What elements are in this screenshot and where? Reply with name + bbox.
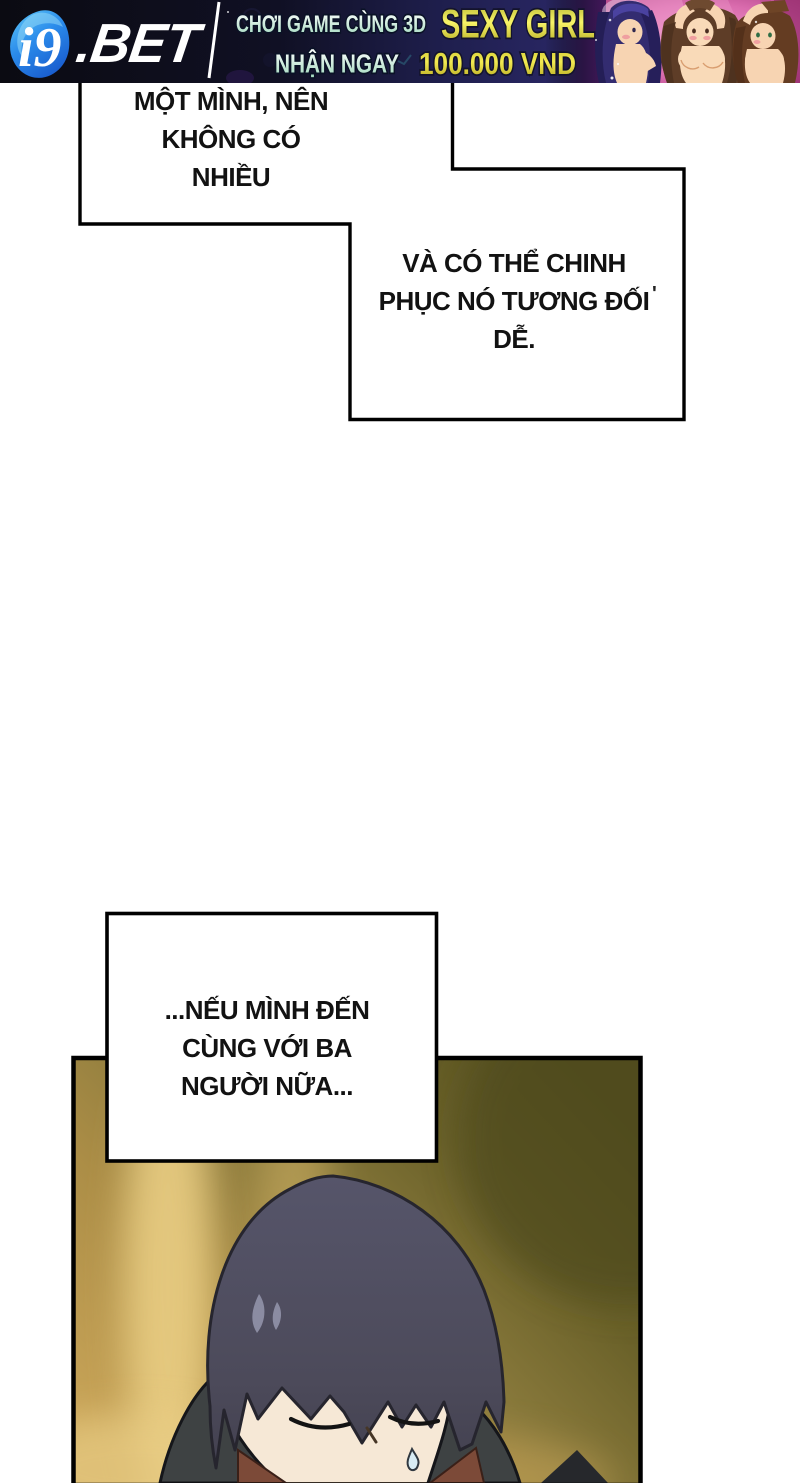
svg-text:.BET: .BET bbox=[73, 12, 208, 74]
svg-text:NHẬN NGAY: NHẬN NGAY bbox=[275, 49, 399, 79]
svg-text:SEXY GIRL: SEXY GIRL bbox=[441, 3, 595, 47]
svg-text:100.000 VND: 100.000 VND bbox=[419, 46, 576, 81]
svg-text:i9: i9 bbox=[18, 17, 62, 79]
svg-text:CHƠI GAME CÙNG 3D: CHƠI GAME CÙNG 3D bbox=[236, 10, 426, 38]
